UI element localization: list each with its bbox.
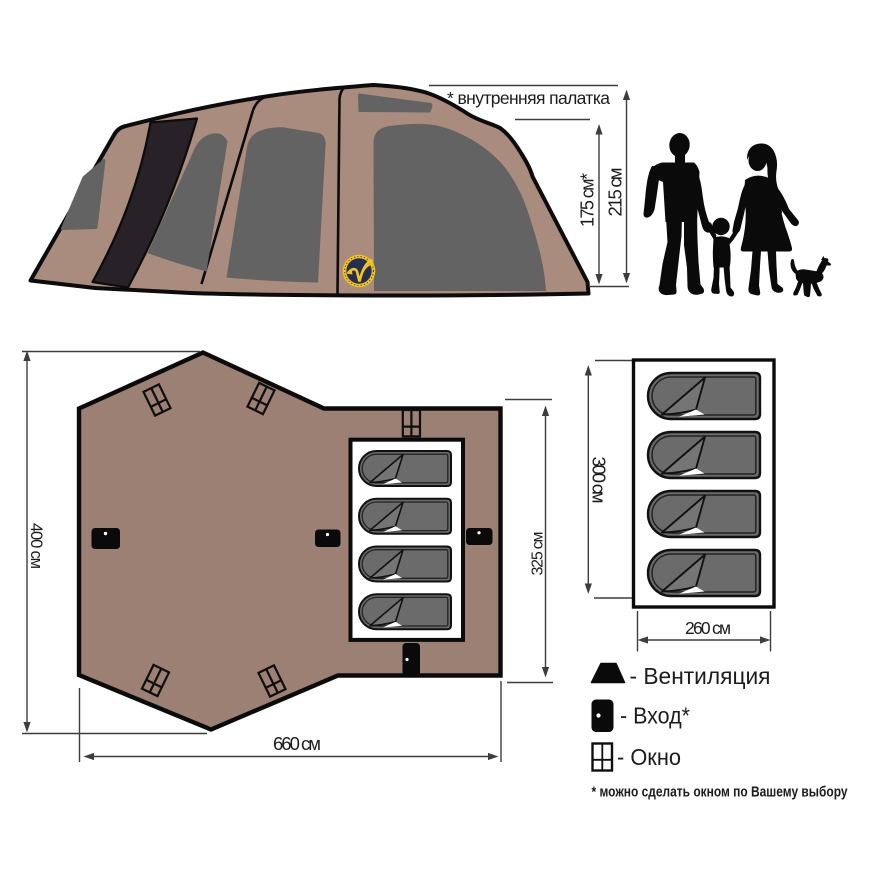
svg-text:325 см: 325 см — [530, 532, 547, 576]
svg-text:* можно сделать окном по Вашем: * можно сделать окном по Вашему выбору — [592, 785, 848, 801]
svg-text:* внутренняя палатка: * внутренняя палатка — [447, 88, 610, 108]
svg-text:- Вентиляция: - Вентиляция — [630, 663, 771, 689]
svg-text:300 см: 300 см — [589, 457, 610, 504]
svg-text:175 см*: 175 см* — [578, 173, 598, 227]
svg-text:- Вход*: - Вход* — [620, 703, 690, 729]
svg-text:400 см: 400 см — [27, 523, 45, 569]
svg-text:260 см: 260 см — [685, 618, 731, 638]
svg-text:- Окно: - Окно — [617, 744, 681, 770]
svg-text:215 см: 215 см — [605, 168, 626, 217]
svg-text:660 см: 660 см — [273, 733, 321, 754]
